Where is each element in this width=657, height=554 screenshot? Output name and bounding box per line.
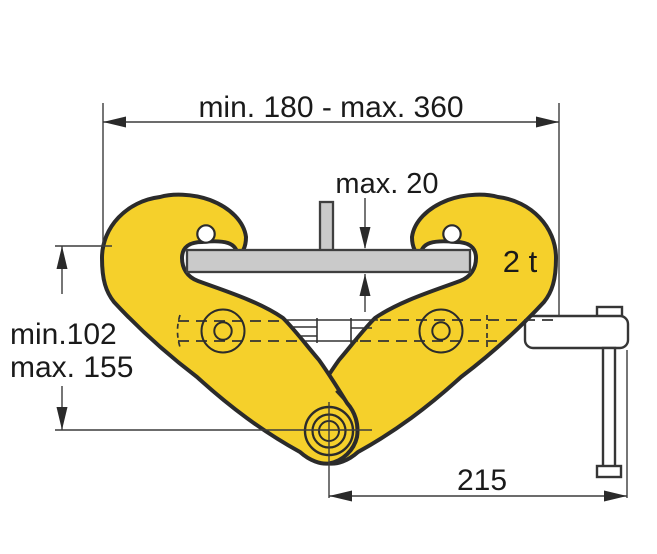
height-max-label: max. 155	[10, 351, 133, 384]
tommy-bar-end	[597, 466, 621, 477]
height-min-label: min.102	[10, 318, 117, 351]
spindle-housing	[525, 307, 628, 477]
spindle-housing-bar	[525, 316, 628, 348]
beam-flange	[187, 250, 470, 272]
jaw-hole-left	[197, 225, 214, 242]
flange-thickness-label: max. 20	[335, 168, 438, 200]
beam-web	[320, 202, 333, 252]
capacity-label: 2 t	[503, 244, 538, 279]
beam-clamp-diagram: min. 180 - max. 360 max. 20 min.102 max.…	[0, 0, 657, 554]
side-offset-label: 215	[457, 464, 507, 497]
diagram-canvas: min. 180 - max. 360 max. 20 min.102 max.…	[0, 0, 657, 554]
clamping-range-label: min. 180 - max. 360	[198, 91, 463, 124]
jaw-hole-right	[443, 225, 460, 242]
tommy-bar	[603, 348, 615, 467]
